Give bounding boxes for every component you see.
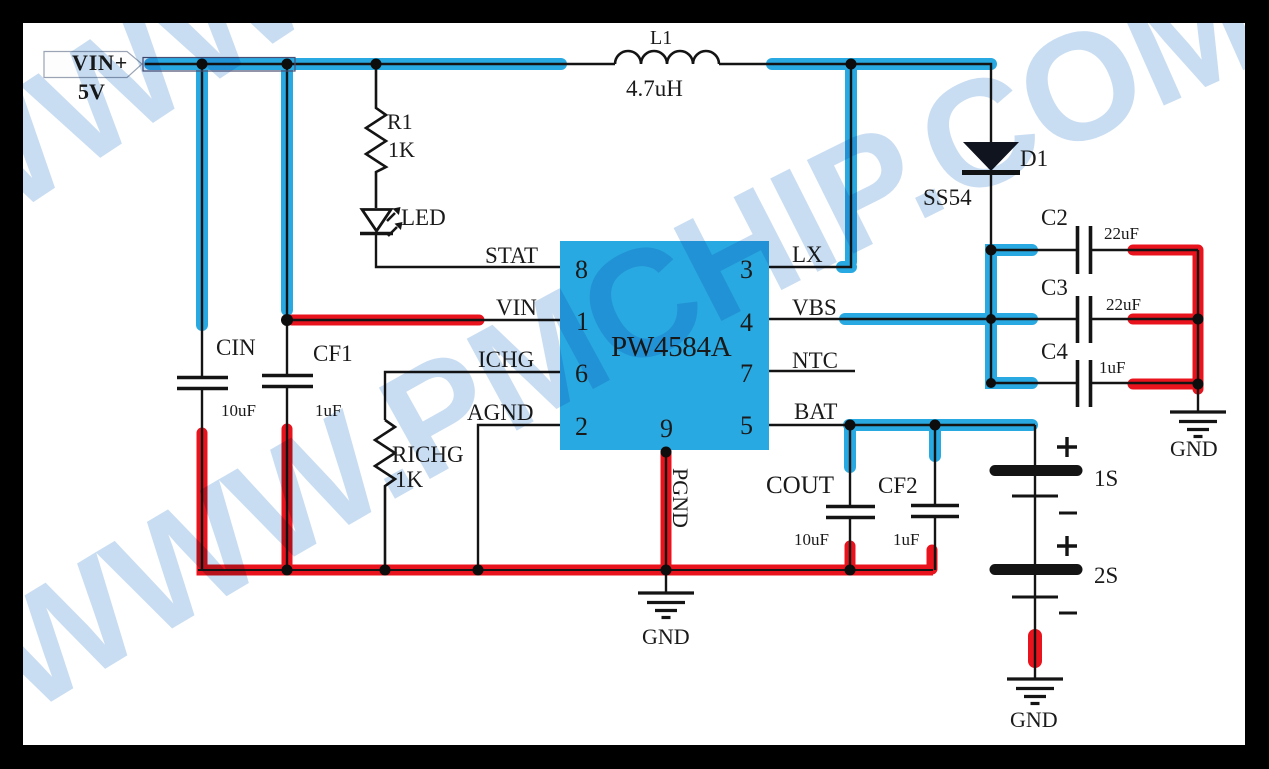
svg-text:7: 7 xyxy=(740,359,753,388)
svg-text:1K: 1K xyxy=(388,137,415,162)
svg-text:GND: GND xyxy=(642,624,690,649)
svg-text:C4: C4 xyxy=(1041,339,1068,364)
svg-text:PGND: PGND xyxy=(668,468,693,528)
svg-text:CF1: CF1 xyxy=(313,341,353,366)
svg-text:CIN: CIN xyxy=(216,335,256,360)
svg-text:1S: 1S xyxy=(1094,466,1118,491)
svg-text:GND: GND xyxy=(1010,707,1058,732)
svg-text:CF2: CF2 xyxy=(878,473,918,498)
svg-text:1uF: 1uF xyxy=(893,530,919,549)
svg-text:LED: LED xyxy=(401,205,446,230)
svg-text:9: 9 xyxy=(660,414,673,443)
svg-text:4.7uH: 4.7uH xyxy=(626,76,683,101)
svg-text:1uF: 1uF xyxy=(1099,358,1125,377)
svg-text:2S: 2S xyxy=(1094,563,1118,588)
svg-text:22uF: 22uF xyxy=(1106,295,1141,314)
svg-text:COUT: COUT xyxy=(766,472,834,499)
svg-text:NTC: NTC xyxy=(792,348,838,373)
svg-text:C2: C2 xyxy=(1041,205,1068,230)
svg-text:22uF: 22uF xyxy=(1104,224,1139,243)
svg-text:BAT: BAT xyxy=(794,399,837,424)
svg-text:STAT: STAT xyxy=(485,243,538,268)
svg-text:C3: C3 xyxy=(1041,275,1068,300)
svg-text:5: 5 xyxy=(740,411,753,440)
svg-text:10uF: 10uF xyxy=(221,401,256,420)
svg-text:GND: GND xyxy=(1170,436,1218,461)
svg-text:R1: R1 xyxy=(387,109,413,134)
svg-text:L1: L1 xyxy=(650,27,672,49)
svg-text:10uF: 10uF xyxy=(794,530,829,549)
